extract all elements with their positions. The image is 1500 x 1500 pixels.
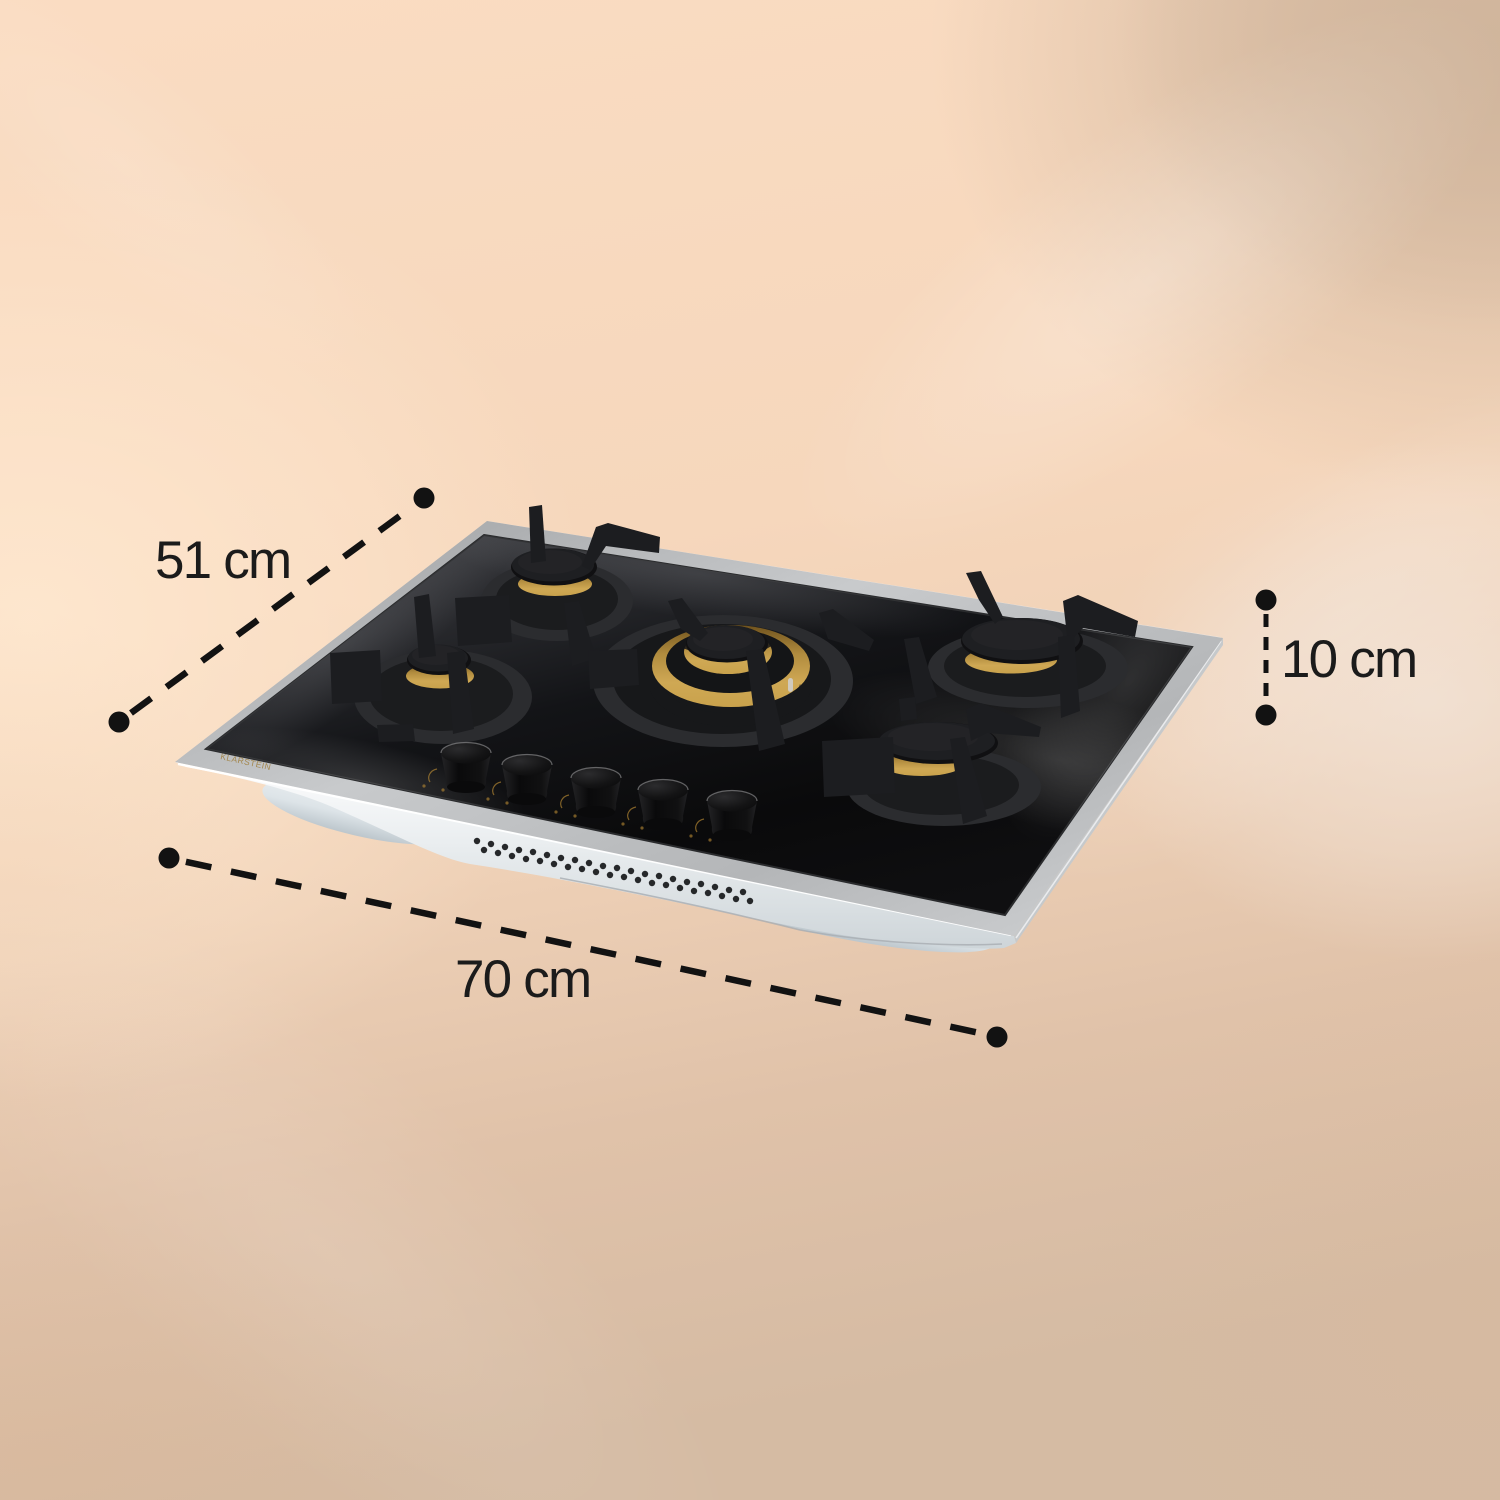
svg-text:10 cm: 10 cm xyxy=(1281,630,1416,689)
svg-text:70 cm: 70 cm xyxy=(455,950,590,1009)
svg-text:51 cm: 51 cm xyxy=(155,531,290,590)
